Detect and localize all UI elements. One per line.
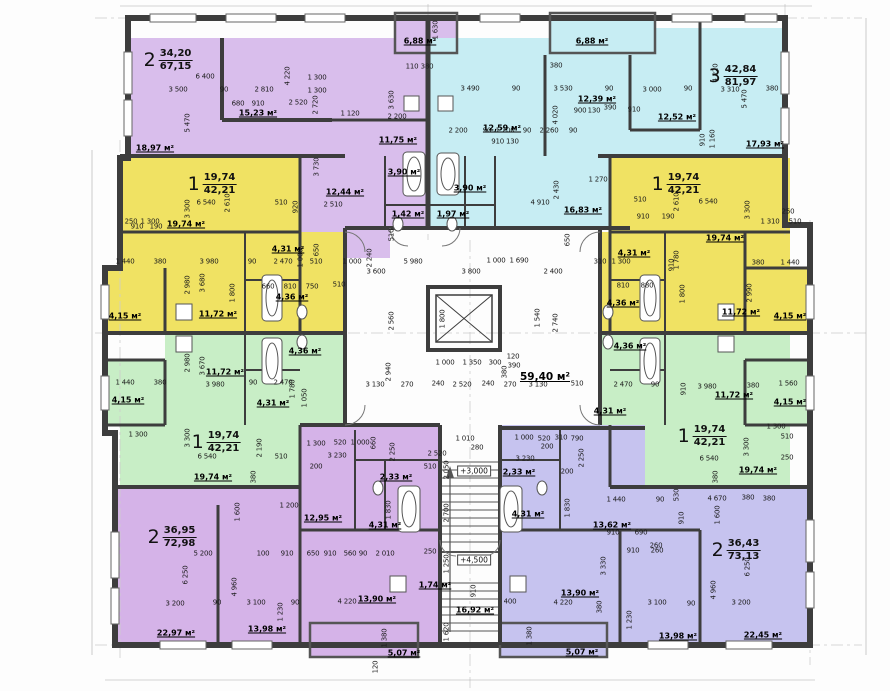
dimension-label: 6 540 xyxy=(197,454,216,461)
dimension-label: 190 xyxy=(662,214,675,221)
dimension-label: 2 250 xyxy=(579,448,586,467)
dimension-label: 3 200 xyxy=(165,601,184,608)
apartment-living-area: 19,74 xyxy=(207,430,241,443)
room-area-label: 4,31 м² xyxy=(272,245,305,254)
room-area-label: 18,97 м² xyxy=(136,144,174,153)
room-area-label: 12,39 м² xyxy=(578,95,616,104)
dimension-label: 1 440 xyxy=(115,259,134,266)
room-area-label: 5,07 м² xyxy=(388,649,421,658)
dimension-label: 1 380 xyxy=(527,626,534,645)
floor-plan-canvas: 6 4003 500902 8106809102 5205 4704 2201 … xyxy=(0,0,890,691)
dimension-label: 2 610 xyxy=(225,193,232,212)
dimension-label: 400 xyxy=(504,599,517,606)
dimension-label: 510 xyxy=(789,219,802,226)
text-labels-layer: 6 4003 500902 8106809102 5205 4704 2201 … xyxy=(0,0,890,691)
dimension-label: 2 200 xyxy=(387,114,406,121)
dimension-label: 310 xyxy=(555,435,568,442)
dimension-label: 3 800 xyxy=(461,269,480,276)
dimension-label: 650 xyxy=(314,244,321,257)
dimension-label: 2 400 xyxy=(543,269,562,276)
dimension-label: 250 xyxy=(424,549,437,556)
dimension-label: 910 xyxy=(669,259,676,272)
dimension-label: 910 xyxy=(281,551,294,558)
dimension-label: 910 xyxy=(131,224,144,231)
dimension-label: 380 xyxy=(766,86,779,93)
dimension-label: 530 xyxy=(674,489,681,502)
room-area-label: 13,98 м² xyxy=(248,625,286,634)
dimension-label: 280 xyxy=(471,445,484,452)
dimension-label: 90 xyxy=(687,601,696,608)
dimension-label: 1 120 xyxy=(340,111,359,118)
apartment-area-fraction: 19,7442,21 xyxy=(667,172,701,196)
dimension-label: 3 600 xyxy=(366,269,385,276)
dimension-label: 1 300 xyxy=(306,441,325,448)
apartment-living-area: 34,20 xyxy=(159,48,193,61)
dimension-label: 1 010 xyxy=(455,436,474,443)
dimension-label: 1 000 xyxy=(350,440,369,447)
apartment-label: 119,7442,21 xyxy=(192,430,241,454)
room-area-label: 11,72 м² xyxy=(199,310,237,319)
dimension-label: 2 520 xyxy=(452,382,471,389)
room-area-label: 4,31 м² xyxy=(594,407,627,416)
apartment-area-fraction: 19,7442,21 xyxy=(693,424,727,448)
dimension-label: 1 050 xyxy=(302,388,309,407)
room-area-label: 17,93 м² xyxy=(746,140,784,149)
dimension-label: 1 300 xyxy=(307,88,326,95)
dimension-label: 910 xyxy=(252,101,265,108)
dimension-label: 1 690 xyxy=(509,258,528,265)
dimension-label: 2 470 xyxy=(273,259,292,266)
dimension-label: 3 130 xyxy=(365,382,384,389)
dimension-label: 910 xyxy=(471,585,478,598)
dimension-label: 790 xyxy=(571,436,584,443)
dimension-label: 900 xyxy=(574,108,587,115)
dimension-label: 380 xyxy=(752,260,765,267)
dimension-label: 510 xyxy=(275,200,288,207)
dimension-label: 680 xyxy=(232,101,245,108)
room-area-label: 6,88 м² xyxy=(404,37,437,46)
room-area-label: 13,62 м² xyxy=(593,521,631,530)
dimension-label: 6 540 xyxy=(196,200,215,207)
dimension-label: 380 xyxy=(747,383,760,390)
dimension-label: 130 xyxy=(588,108,601,115)
room-area-label: 4,15 м² xyxy=(774,398,807,407)
room-area-label: 11,75 м² xyxy=(379,136,417,145)
dimension-label: 1 230 xyxy=(627,610,634,629)
room-area-label: 12,95 м² xyxy=(304,514,342,523)
dimension-label: 3 230 xyxy=(327,453,346,460)
apartment-area-fraction: 42,8481,97 xyxy=(724,64,758,88)
dimension-label: 1 300 xyxy=(307,75,326,82)
room-area-label: 4,36 м² xyxy=(289,347,322,356)
apartment-label: 119,7442,21 xyxy=(678,424,727,448)
dimension-label: 4 960 xyxy=(232,577,239,596)
dimension-label: 190 xyxy=(150,224,163,231)
room-area-label: 1,74 м² xyxy=(419,581,452,590)
dimension-label: 2 940 xyxy=(386,362,393,381)
apartment-area-fraction: 36,9572,98 xyxy=(163,525,197,549)
dimension-label: 4 220 xyxy=(285,66,292,85)
room-area-label: 4,36 м² xyxy=(607,299,640,308)
apartment-room-count: 1 xyxy=(678,425,690,447)
dimension-label: 1 300 xyxy=(766,424,785,431)
dimension-label: 120 xyxy=(373,661,380,674)
dimension-label: 910 xyxy=(324,551,337,558)
room-area-label: 13,90 м² xyxy=(358,595,396,604)
dimension-label: 120 xyxy=(507,354,520,361)
dimension-label: 510 xyxy=(571,381,584,388)
apartment-total-area: 42,21 xyxy=(667,185,701,197)
room-area-label: 59,40 м² xyxy=(520,371,570,383)
dimension-label: 380 xyxy=(251,471,258,484)
dimension-label: 510 xyxy=(634,197,647,204)
dimension-label: 1 440 xyxy=(606,497,625,504)
room-area-label: 4,36 м² xyxy=(614,342,647,351)
dimension-label: 90 xyxy=(291,600,300,607)
room-area-label: 6,88 м² xyxy=(576,37,609,46)
dimension-label: 200 xyxy=(561,469,574,476)
room-area-label: 2,33 м² xyxy=(503,468,536,477)
dimension-label: 3 730 xyxy=(314,157,321,176)
dimension-label: 380 xyxy=(154,380,167,387)
dimension-label: 4 020 xyxy=(553,105,560,124)
dimension-label: 2 520 xyxy=(288,100,307,107)
dimension-label: 380 xyxy=(154,259,167,266)
room-area-label: 4,15 м² xyxy=(774,312,807,321)
dimension-label: 4 910 xyxy=(530,200,549,207)
apartment-total-area: 42,21 xyxy=(207,443,241,455)
dimension-label: 3 500 xyxy=(168,87,187,94)
dimension-label: 1 800 xyxy=(230,283,237,302)
dimension-label: 5 470 xyxy=(185,113,192,132)
room-area-label: 4,15 м² xyxy=(112,396,145,405)
dimension-label: 1 300 xyxy=(128,432,147,439)
dimension-label: 3 000 xyxy=(642,87,661,94)
room-area-label: 22,45 м² xyxy=(744,631,782,640)
dimension-label: 1 620 xyxy=(444,622,451,641)
dimension-label: 910 xyxy=(628,107,641,114)
dimension-label: 90 xyxy=(605,86,614,93)
apartment-room-count: 1 xyxy=(652,173,664,195)
dimension-label: 310 xyxy=(594,259,607,266)
dimension-label: 6 250 xyxy=(183,565,190,584)
dimension-label: 240 xyxy=(482,381,495,388)
dimension-label: 3 630 xyxy=(389,90,396,109)
dimension-label: 3 490 xyxy=(460,86,479,93)
level-mark: +4,500 xyxy=(457,555,491,566)
dimension-label: 1 300 xyxy=(611,259,630,266)
apartment-label: 236,4373,13 xyxy=(712,538,761,562)
dimension-label: 6 540 xyxy=(699,456,718,463)
dimension-label: 380 xyxy=(713,471,720,484)
dimension-label: 660 xyxy=(371,437,378,450)
dimension-label: 510 xyxy=(310,259,323,266)
dimension-label: 1 380 xyxy=(382,628,389,647)
dimension-label: 1 000 xyxy=(514,435,533,442)
room-area-label: 3,90 м² xyxy=(388,168,421,177)
dimension-label: 2 190 xyxy=(257,438,264,457)
room-area-label: 19,74 м² xyxy=(194,473,232,482)
apartment-label: 236,9572,98 xyxy=(148,525,197,549)
dimension-label: 1 800 xyxy=(680,284,687,303)
room-area-label: 11,72 м² xyxy=(715,391,753,400)
dimension-label: 1 560 xyxy=(778,381,797,388)
dimension-label: 250 xyxy=(782,209,795,216)
dimension-label: 380 xyxy=(763,496,776,503)
dimension-label: 1 160 xyxy=(710,129,717,148)
dimension-label: 910 xyxy=(681,383,688,396)
dimension-label: 2 980 xyxy=(185,353,192,372)
dimension-label: 90 xyxy=(220,87,229,94)
dimension-label: 510 xyxy=(333,282,346,289)
room-area-label: 22,97 м² xyxy=(157,629,195,638)
dimension-label: 2 260 xyxy=(539,128,558,135)
dimension-label: 390 xyxy=(604,105,617,112)
apartment-area-fraction: 36,4373,13 xyxy=(727,538,761,562)
room-area-label: 11,72 м² xyxy=(206,368,244,377)
dimension-label: 2 810 xyxy=(254,87,273,94)
dimension-label: 5 980 xyxy=(403,259,422,266)
dimension-label: 1 000 xyxy=(435,360,454,367)
dimension-label: 3 300 xyxy=(185,199,192,218)
dimension-label: 690 xyxy=(635,530,648,537)
dimension-label: 2 700 xyxy=(444,503,451,522)
dimension-label: 660 xyxy=(262,284,275,291)
dimension-label: 560 xyxy=(344,551,357,558)
dimension-label: 2 250 xyxy=(390,442,397,461)
room-area-label: 13,98 м² xyxy=(659,632,697,641)
dimension-label: 520 xyxy=(334,440,347,447)
dimension-label: 90 xyxy=(684,86,693,93)
dimension-label: 6 400 xyxy=(195,74,214,81)
dimension-label: 810 xyxy=(284,284,297,291)
dimension-label: 3 680 xyxy=(200,273,207,292)
dimension-label: 1 270 xyxy=(588,177,607,184)
dimension-label: 1 000 xyxy=(342,259,361,266)
room-area-label: 5,07 м² xyxy=(566,648,599,657)
apartment-area-fraction: 34,2067,15 xyxy=(159,48,193,72)
dimension-label: 650 xyxy=(307,551,320,558)
dimension-label: 2 050 xyxy=(444,460,451,479)
dimension-label: 380 xyxy=(550,63,563,70)
dimension-label: 3 300 xyxy=(744,437,751,456)
apartment-label: 342,8481,97 xyxy=(709,64,758,88)
dimension-label: 380 xyxy=(421,64,434,71)
room-area-label: 2,33 м² xyxy=(380,473,413,482)
dimension-label: 90 xyxy=(249,380,258,387)
dimension-label: 1 600 xyxy=(235,502,242,521)
apartment-label: 234,2067,15 xyxy=(144,48,193,72)
room-area-label: 13,90 м² xyxy=(561,589,599,598)
room-area-label: 4,31 м² xyxy=(512,510,545,519)
dimension-label: 90 xyxy=(248,259,257,266)
apartment-total-area: 42,21 xyxy=(203,185,237,197)
dimension-label: 1 830 xyxy=(565,498,572,517)
dimension-label: 910 130 xyxy=(491,139,519,146)
dimension-label: 240 xyxy=(432,381,445,388)
dimension-label: 880 xyxy=(641,283,654,290)
apartment-area-fraction: 19,7442,21 xyxy=(207,430,241,454)
dimension-label: 1 310 xyxy=(760,219,779,226)
dimension-label: 3 980 xyxy=(697,384,716,391)
dimension-label: 4 220 xyxy=(553,600,572,607)
dimension-label: 1 200 xyxy=(279,503,298,510)
room-area-label: 19,74 м² xyxy=(167,220,205,229)
room-area-label: 1,42 м² xyxy=(392,210,425,219)
dimension-label: 300 xyxy=(489,360,502,367)
dimension-label: 4 670 xyxy=(707,496,726,503)
room-area-label: 12,52 м² xyxy=(658,113,696,122)
dimension-label: 2 980 xyxy=(185,275,192,294)
dimension-label: 2 990 xyxy=(747,283,754,302)
dimension-label: 380 xyxy=(742,495,755,502)
apartment-total-area: 72,98 xyxy=(163,538,197,550)
dimension-label: 110 xyxy=(406,64,419,71)
room-area-label: 19,74 м² xyxy=(739,466,777,475)
dimension-label: 650 xyxy=(565,234,572,247)
room-area-label: 12,59 м² xyxy=(483,124,521,133)
dimension-label: 910 xyxy=(607,530,620,537)
dimension-label: 1 250 xyxy=(444,554,451,573)
dimension-label: 390 xyxy=(508,363,521,370)
room-area-label: 11,72 м² xyxy=(722,308,760,317)
apartment-living-area: 36,43 xyxy=(727,538,761,551)
dimension-label: 2 010 xyxy=(375,551,394,558)
apartment-room-count: 1 xyxy=(188,173,200,195)
dimension-label: 2 740 xyxy=(553,313,560,332)
room-area-label: 3,90 м² xyxy=(454,184,487,193)
dimension-label: 90 xyxy=(569,128,578,135)
dimension-label: 250 xyxy=(781,455,794,462)
dimension-label: 520 xyxy=(538,436,551,443)
dimension-label: 4 960 xyxy=(711,580,718,599)
dimension-label: 6 540 xyxy=(698,199,717,206)
room-area-label: 4,31 м² xyxy=(257,399,290,408)
dimension-label: 910 xyxy=(627,548,640,555)
room-area-label: 4,15 м² xyxy=(109,312,142,321)
dimension-label: 5 470 xyxy=(742,89,749,108)
dimension-label: 920 xyxy=(293,201,300,214)
dimension-label: 90 xyxy=(359,551,368,558)
room-area-label: 15,23 м² xyxy=(239,109,277,118)
apartment-room-count: 2 xyxy=(712,539,724,561)
room-area-label: 4,36 м² xyxy=(276,293,309,302)
dimension-label: 2 430 xyxy=(554,180,561,199)
apartment-living-area: 19,74 xyxy=(693,424,727,437)
apartment-living-area: 19,74 xyxy=(667,172,701,185)
dimension-label: 2 510 xyxy=(323,202,342,209)
apartment-room-count: 1 xyxy=(192,431,204,453)
dimension-label: 1 830 xyxy=(386,500,393,519)
apartment-area-fraction: 19,7442,21 xyxy=(203,172,237,196)
apartment-label: 119,7442,21 xyxy=(188,172,237,196)
dimension-label: 910 xyxy=(700,134,707,147)
dimension-label: 510 xyxy=(781,434,794,441)
dimension-label: 2 240 xyxy=(367,248,374,267)
dimension-label: 3 200 xyxy=(731,600,750,607)
dimension-label: 90 xyxy=(512,86,521,93)
apartment-living-area: 36,95 xyxy=(163,525,197,538)
dimension-label: 1 440 xyxy=(780,260,799,267)
room-area-label: 4,31 м² xyxy=(369,521,402,530)
dimension-label: 510 xyxy=(275,454,288,461)
dimension-label: 3 330 xyxy=(601,556,608,575)
dimension-label: 510 xyxy=(389,229,396,242)
apartment-room-count: 3 xyxy=(709,65,721,87)
dimension-label: 2 560 xyxy=(389,311,396,330)
dimension-label: 3 300 xyxy=(185,428,192,447)
room-area-label: 1,97 м² xyxy=(437,210,470,219)
dimension-label: 200 xyxy=(541,444,554,451)
dimension-label: 1 540 xyxy=(535,308,542,327)
apartment-living-area: 42,84 xyxy=(724,64,758,77)
dimension-label: 100 xyxy=(257,551,270,558)
room-area-label: 4,31 м² xyxy=(618,249,651,258)
dimension-label: 2 470 xyxy=(613,382,632,389)
dimension-label: 1 600 xyxy=(715,505,722,524)
dimension-label: 910 xyxy=(679,512,686,525)
room-area-label: 16,83 м² xyxy=(564,206,602,215)
dimension-label: 2 720 xyxy=(313,95,320,114)
room-area-label: 12,44 м² xyxy=(326,188,364,197)
apartment-room-count: 2 xyxy=(144,49,156,71)
dimension-label: 260 xyxy=(651,548,664,555)
dimension-label: 2 520 xyxy=(427,451,446,458)
dimension-label: 1 780 xyxy=(290,379,297,398)
dimension-label: 270 xyxy=(504,382,517,389)
level-mark: +3,000 xyxy=(457,466,491,477)
apartment-total-area: 81,97 xyxy=(724,77,758,89)
dimension-label: 810 xyxy=(617,283,630,290)
dimension-label: 4 220 xyxy=(337,599,356,606)
room-area-label: 16,92 м² xyxy=(456,606,494,615)
dimension-label: 3 300 xyxy=(745,200,752,219)
dimension-label: 1 440 xyxy=(115,380,134,387)
dimension-label: 750 xyxy=(306,284,319,291)
dimension-label: 3 980 xyxy=(199,259,218,266)
dimension-label: 910 xyxy=(637,214,650,221)
apartment-total-area: 73,13 xyxy=(727,551,761,563)
apartment-total-area: 42,21 xyxy=(693,437,727,449)
apartment-total-area: 67,15 xyxy=(159,61,193,73)
apartment-living-area: 19,74 xyxy=(203,172,237,185)
dimension-label: 3 100 xyxy=(647,600,666,607)
dimension-label: 3 530 xyxy=(553,86,572,93)
dimension-label: 1 800 xyxy=(440,309,447,328)
dimension-label: 3 980 xyxy=(205,382,224,389)
dimension-label: 380 xyxy=(597,601,604,614)
dimension-label: 200 xyxy=(310,464,323,471)
dimension-label: 2 200 xyxy=(448,128,467,135)
dimension-label: 90 xyxy=(523,128,532,135)
dimension-label: 90 xyxy=(213,600,222,607)
dimension-label: 3 100 xyxy=(246,600,265,607)
dimension-label: 5 200 xyxy=(193,551,212,558)
dimension-label: 270 xyxy=(401,382,414,389)
apartment-label: 119,7442,21 xyxy=(652,172,701,196)
apartment-room-count: 2 xyxy=(148,526,160,548)
dimension-label: 510 xyxy=(424,464,437,471)
dimension-label: 3 230 xyxy=(515,456,534,463)
dimension-label: 1 230 xyxy=(278,602,285,621)
room-area-label: 19,74 м² xyxy=(706,234,744,243)
dimension-label: 1 000 xyxy=(486,258,505,265)
dimension-label: 90 xyxy=(656,497,665,504)
dimension-label: 90 xyxy=(651,382,660,389)
dimension-label: 1 350 xyxy=(462,360,481,367)
